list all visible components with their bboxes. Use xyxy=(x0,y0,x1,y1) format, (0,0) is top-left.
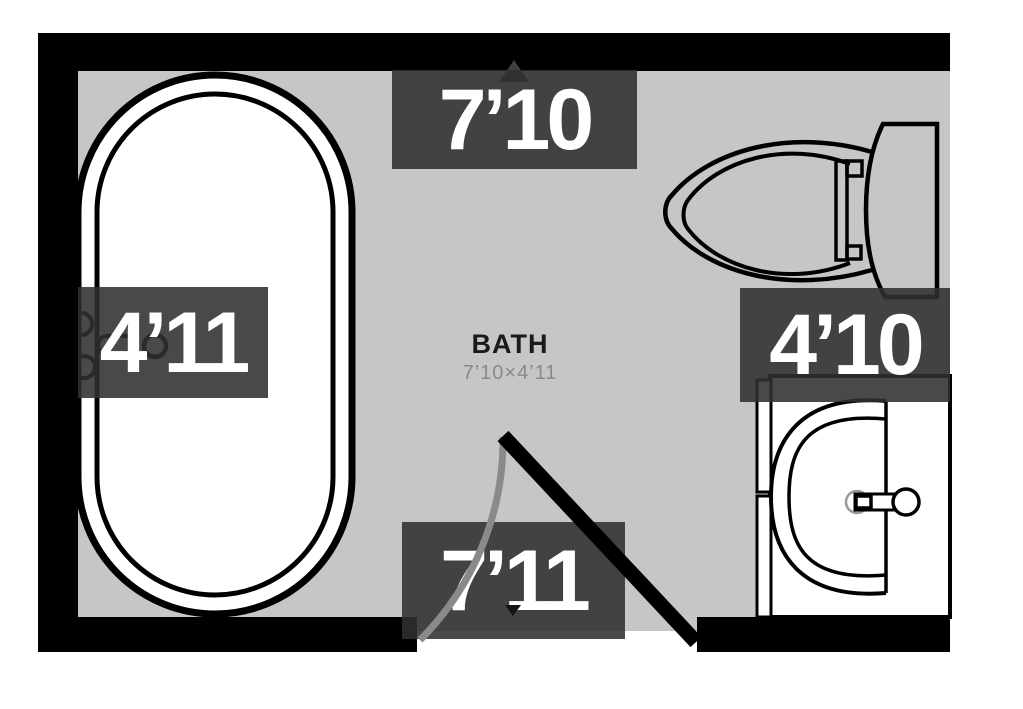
dimension-top-text: 7’10 xyxy=(439,77,590,163)
dimension-left-text: 4’11 xyxy=(100,300,247,386)
toilet-icon xyxy=(665,124,937,297)
sink-vanity-icon xyxy=(757,376,950,617)
floor-plan: 7’10 4’11 4’10 7’11 BATH 7’10×4’11 xyxy=(0,0,1023,709)
dimension-label-right: 4’10 xyxy=(740,288,950,402)
room-name: BATH xyxy=(394,330,626,360)
dimension-label-left: 4’11 xyxy=(78,287,268,398)
room-size: 7’10×4’11 xyxy=(394,362,626,384)
dimension-arrow-down-icon xyxy=(505,605,521,616)
dimension-label-top: 7’10 xyxy=(392,70,637,169)
dimension-label-bottom: 7’11 xyxy=(402,522,625,639)
dimension-right-text: 4’10 xyxy=(769,302,920,388)
room-label: BATH 7’10×4’11 xyxy=(394,330,626,384)
